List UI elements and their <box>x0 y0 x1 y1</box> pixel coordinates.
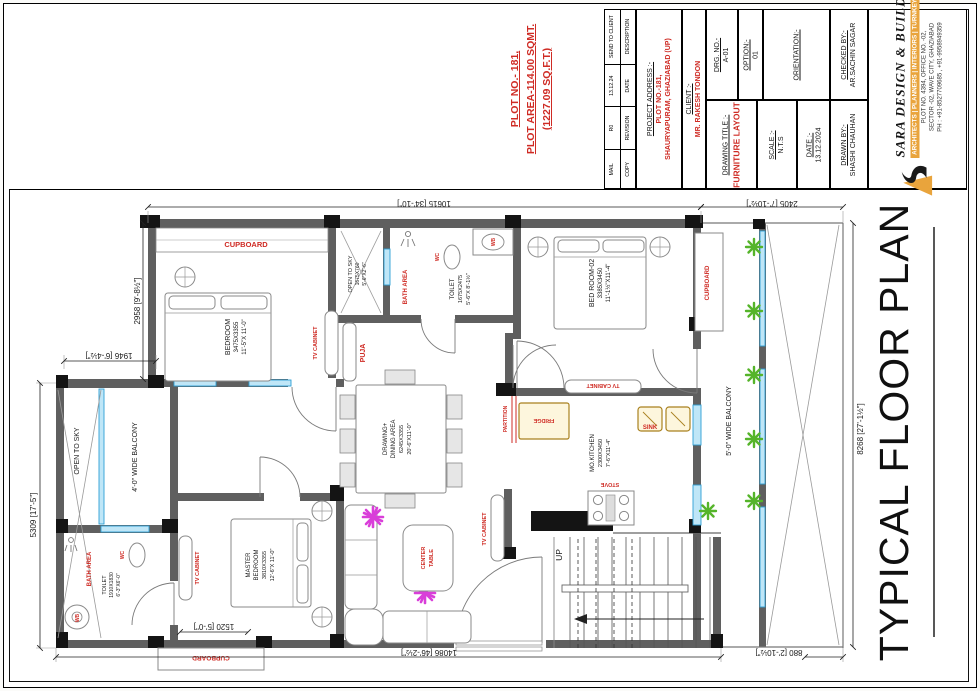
tv-cabinet-bedroom2-label: TV CABINET <box>586 382 620 388</box>
revision-value: 13.12.24 <box>605 65 621 106</box>
svg-text:CENTER: CENTER <box>421 547 427 570</box>
tb-checked-by: CHECKED BY:- AR.SACHIN SAGAR <box>830 9 868 100</box>
svg-text:CUPBOARD: CUPBOARD <box>192 654 230 661</box>
revision-value: SEND TO CLIENT <box>605 9 621 64</box>
drawing-sheet: PLOT NO.- 181, PLOT AREA-114.00 SQMT. (1… <box>0 0 980 691</box>
cupboard-bottom: CUPBOARD <box>158 648 264 670</box>
dim-right: 8268 [27'-1½"] <box>856 403 865 455</box>
floor-plan-svg: BEDROOM 3475X3355 11'-5"X 11'-0" CUPBOAR… <box>9 189 967 680</box>
plot-note-line2: PLOT AREA-114.00 SQMT. <box>524 24 540 154</box>
drawn-by-label: DRAWN BY:- <box>841 124 848 165</box>
revision-col-copy: MAIL COPY <box>605 149 635 189</box>
cupboard-right-label: CUPBOARD <box>705 265 711 300</box>
svg-text:MASTER: MASTER <box>246 552 252 578</box>
dim-cupboard: 1520 [5'-0"] <box>194 622 234 631</box>
wc-top-fixture <box>444 245 460 269</box>
company-name: SARA DESIGN & BUILD <box>892 0 908 157</box>
svg-text:OPEN TO SKY: OPEN TO SKY <box>348 255 354 292</box>
bath-area-bottom-label: BATH AREA <box>87 551 93 586</box>
client-value: MR. RAKESH TONDON <box>695 61 702 137</box>
svg-text:MO.KITCHEN: MO.KITCHEN <box>590 434 596 472</box>
revision-value: MAIL <box>605 150 621 189</box>
drg-no-label: DRG. NO.- <box>714 37 721 71</box>
svg-text:1675X760: 1675X760 <box>355 262 361 285</box>
revision-label: COPY <box>621 150 636 189</box>
plot-note-line1: PLOT NO.- 181, <box>508 51 524 127</box>
room-label-bedroom1: BEDROOM 3475X3355 11'-5"X 11'-0" <box>225 319 248 355</box>
tv-cabinet-drawing-label: TV CABINET <box>482 512 488 546</box>
svg-text:5'-6"X 8'-1½": 5'-6"X 8'-1½" <box>465 273 472 305</box>
company-block: SARA DESIGN & BUILD ARCHITECTS | PLANNER… <box>868 9 967 189</box>
svg-text:7'-6"X11'-4": 7'-6"X11'-4" <box>606 439 612 467</box>
scale-value: N.T.S <box>778 136 785 153</box>
svg-text:BED ROOM-02: BED ROOM-02 <box>589 259 596 307</box>
wc-bottom-label: WC <box>120 550 126 559</box>
svg-text:3810X3355: 3810X3355 <box>262 551 268 579</box>
fridge-label: FRIDGE <box>533 417 554 423</box>
dim-left-upper: 1946 [6'-4½"] <box>85 351 132 360</box>
tv-cabinet-master-label: TV CABINET <box>195 551 201 585</box>
stairs-direction-arrow <box>574 614 587 624</box>
drawn-by-value: SHASHI CHAUHAN <box>850 113 857 176</box>
option-value: 01 <box>752 51 759 59</box>
bed-bedroom1 <box>156 228 338 381</box>
orientation-label: ORIENTATION:- <box>793 29 800 80</box>
svg-text:3475X3355: 3475X3355 <box>234 321 240 352</box>
tb-option: OPTION:- 01 <box>738 9 763 100</box>
svg-text:6'-3"X6'-0": 6'-3"X6'-0" <box>116 573 122 596</box>
shower-icon-top <box>401 231 415 247</box>
puja-label: PUJA <box>360 344 367 363</box>
room-label-toilet-bottom: TOILET 1910X1830 6'-3"X6'-0" <box>102 572 122 598</box>
checked-by-value: AR.SACHIN SAGAR <box>850 22 857 87</box>
tv-cabinet-bedroom1-label: TV CABINET <box>313 326 319 360</box>
svg-text:5'-6"X2'-6": 5'-6"X2'-6" <box>362 262 368 285</box>
date-label: DATE :- <box>806 132 813 156</box>
stairs-up-label: UP <box>554 549 564 561</box>
cupboard-top-label: CUPBOARD <box>224 240 268 249</box>
bath-area-top-label: BATH AREA <box>403 269 409 304</box>
revision-col-desc: SEND TO CLIENT DESCRIPTION <box>605 9 635 64</box>
room-label-kitchen: MO.KITCHEN 2300X3450 7'-6"X11'-4" <box>590 434 612 472</box>
svg-text:DRAWING+: DRAWING+ <box>383 422 389 455</box>
dim-left-mid: 2958 [9'-8½"] <box>133 277 142 324</box>
option-label: OPTION:- <box>743 39 750 70</box>
room-label-toilet-top: TOILET 1675X2475 5'-6"X 8'-1½" <box>450 273 472 305</box>
center-table-box <box>403 525 453 591</box>
svg-text:20'-6"X11'-0": 20'-6"X11'-0" <box>407 423 413 454</box>
drg-no-value: A-01 <box>723 47 730 62</box>
drawing-title-value: FURNITURE LAYOUT <box>731 102 741 188</box>
svg-text:BEDROOM: BEDROOM <box>254 549 260 580</box>
dim-bottom: 14086 [46'-2½"] <box>401 648 457 657</box>
client-label: CLIENT :- <box>686 84 693 115</box>
svg-text:BEDROOM: BEDROOM <box>225 319 232 355</box>
svg-text:TOILET: TOILET <box>450 278 456 299</box>
company-tagline: ARCHITECTS | PLANNERS | INTERIORS | TURN… <box>910 0 919 158</box>
svg-text:11'-1½"X11'-4": 11'-1½"X11'-4" <box>605 264 612 303</box>
svg-text:2300X3450: 2300X3450 <box>598 439 604 467</box>
svg-text:WB: WB <box>491 237 497 246</box>
svg-text:3385X3450: 3385X3450 <box>598 267 604 298</box>
room-label-open-sky-top: OPEN TO SKY 1675X760 5'-6"X2'-6" <box>348 255 368 292</box>
svg-text:12'-6"X 11'-0": 12'-6"X 11'-0" <box>270 549 276 582</box>
company-address1: PLOT NO. 4394, OFFICE NO. -02, <box>921 31 927 124</box>
svg-text:11'-5"X 11'-0": 11'-5"X 11'-0" <box>242 319 248 354</box>
stairs: UP <box>554 537 710 648</box>
tb-drg-no: DRG. NO.- A-01 <box>706 9 738 100</box>
tb-scale: SCALE :- N.T.S <box>757 100 797 189</box>
company-address2: SECTOR -02, WAVE CITY, GHAZIABAD <box>929 23 935 131</box>
floor-plan-area: BEDROOM 3475X3355 11'-5"X 11'-0" CUPBOAR… <box>9 189 967 680</box>
dim-bottom-right: 880 [2'-10½"] <box>755 648 802 657</box>
revision-label: DESCRIPTION <box>621 9 636 64</box>
stove-label: STOVE <box>600 481 619 487</box>
plot-note-line3: (1227.09 SQ.F.T.) <box>540 48 556 130</box>
sheet-title: TYPICAL FLOOR PLAN <box>871 203 917 662</box>
wb-bottom-label: WB <box>75 613 81 622</box>
revision-col-date: 13.12.24 DATE <box>605 64 635 106</box>
balcony-left-label: 4'-0" WIDE BALCONY <box>132 422 139 492</box>
revision-table: MAIL COPY R0 REVISION 13.12.24 DATE SEND… <box>604 9 636 189</box>
puja-shelf <box>343 323 356 381</box>
sink-label: SINK <box>643 425 658 431</box>
plot-note: PLOT NO.- 181, PLOT AREA-114.00 SQMT. (1… <box>494 14 570 164</box>
revision-label: REVISION <box>621 107 636 148</box>
tv-cabinet-drawing-box <box>491 495 504 561</box>
tb-drawn-by: DRAWN BY:- SHASHI CHAUHAN <box>830 100 868 189</box>
dim-top: 10615 [34'-10"] <box>397 199 451 208</box>
project-address-line2: SHAURYAPURAM, GHAZIABAD (UP) <box>665 38 672 160</box>
sofa-plant-decor-1 <box>363 507 383 527</box>
project-address-label: PROJECT ADDRESS :- <box>647 62 654 136</box>
tb-drawing-title: DRAWING TITLE :- FURNITURE LAYOUT <box>706 100 757 189</box>
balcony-right-label: 5'-0" WIDE BALCONY <box>726 386 733 456</box>
partition-label: PARTITION <box>503 405 509 432</box>
wb-top-fixture: WB <box>473 229 513 255</box>
revision-value: R0 <box>605 107 621 148</box>
svg-text:TOILET: TOILET <box>102 575 108 595</box>
scale-label: SCALE :- <box>769 130 776 159</box>
wc-top-label: WC <box>435 252 441 261</box>
project-address-line1: PLOT NO.-181, <box>656 75 663 124</box>
company-phone: PH : +91-8527709685 , +91-9958949359 <box>937 22 943 131</box>
tb-client: CLIENT :- MR. RAKESH TONDON <box>682 9 706 189</box>
svg-text:TABLE: TABLE <box>429 549 435 567</box>
revision-label: DATE <box>621 65 636 106</box>
svg-text:DINING AREA: DINING AREA <box>391 420 397 459</box>
drawing-title-label: DRAWING TITLE :- <box>722 114 729 175</box>
svg-text:1910X1830: 1910X1830 <box>109 572 115 598</box>
dim-top-right: 2405 [7'-10½"] <box>746 199 798 208</box>
date-value: 13.12.2024 <box>815 127 822 162</box>
tb-project-address: PROJECT ADDRESS :- PLOT NO.-181, SHAURYA… <box>636 9 682 189</box>
dim-left: 5309 [17'-5"] <box>29 493 38 538</box>
tb-date: DATE :- 13.12.2024 <box>797 100 830 189</box>
revision-col-rev: R0 REVISION <box>605 106 635 148</box>
tb-orientation: ORIENTATION:- <box>763 9 830 100</box>
open-sky-left-label: OPEN TO SKY <box>74 427 81 475</box>
svg-text:6245X3355: 6245X3355 <box>399 425 405 453</box>
checked-by-label: CHECKED BY:- <box>841 30 848 79</box>
svg-text:1675X2475: 1675X2475 <box>458 275 464 303</box>
